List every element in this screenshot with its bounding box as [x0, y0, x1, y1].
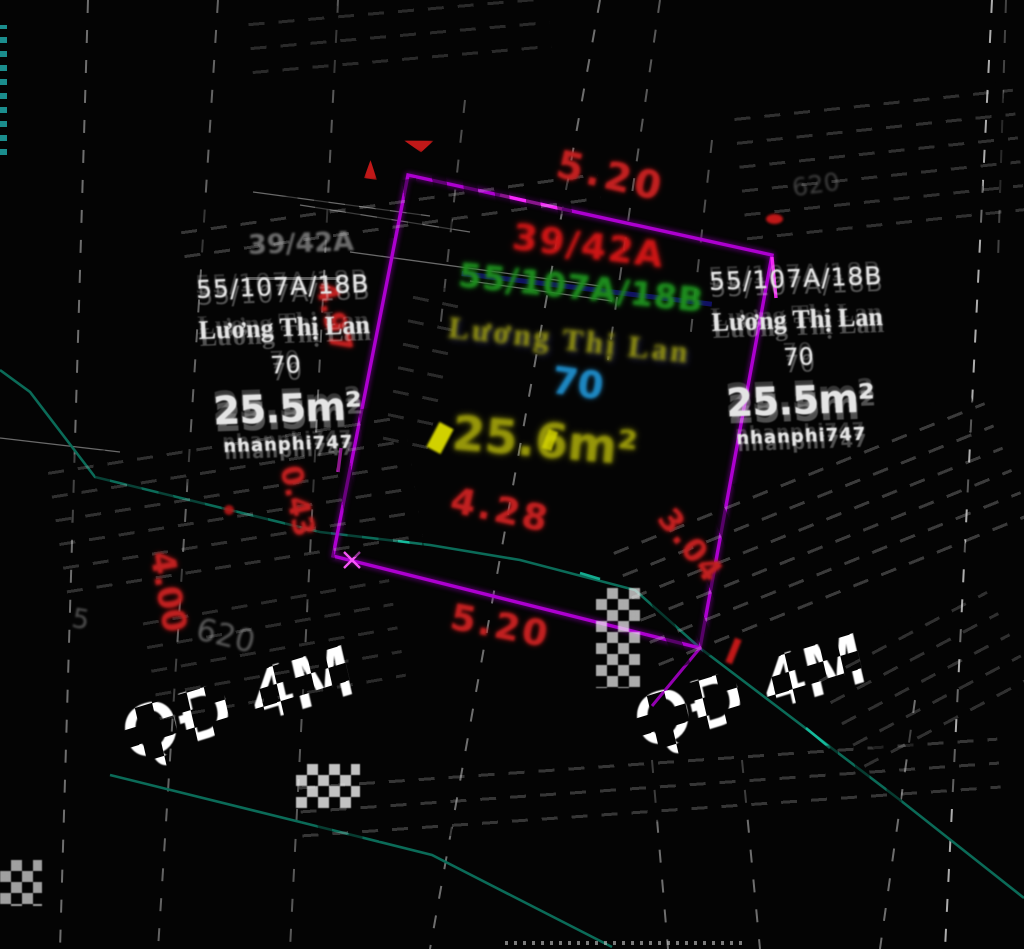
cad-viewport[interactable]: 5.20 39/42A 55/107A/18B Lương Thị Lan 70…: [0, 0, 1024, 949]
neighbor-area-label: 25.5m²: [199, 384, 375, 435]
land-code-label: 70: [549, 359, 606, 409]
glitch-checker-blob: [0, 860, 42, 906]
glitch-field: [733, 81, 1024, 250]
neighbor-address-label: 55/107A/18B: [195, 269, 371, 304]
cyan-edge-glitch: [0, 25, 7, 155]
ghost-plot-number-label: 39/42A: [247, 226, 354, 261]
neighbor-owner-label: Lương Thị Lan: [196, 310, 372, 346]
neighbor-right-block: 55/107A/18B Lương Thị Lan 70 25.5m² nhan…: [703, 261, 894, 450]
neighbor-land-code-label: 70: [198, 348, 374, 382]
glitch-checker-blob: [296, 764, 360, 808]
neighbor-left-block: 55/107A/18B Lương Thị Lan 70 25.5m² nhan…: [195, 269, 376, 458]
neighbor-area-label: 25.5m²: [707, 376, 893, 427]
dotted-tick-row: [505, 941, 747, 945]
glitch-checker-strip: [596, 588, 640, 688]
red-dot-mark: [224, 505, 234, 515]
neighbor-owner-label: Lương Thị Lan: [704, 302, 890, 338]
neighbor-land-code-label: 70: [706, 340, 892, 374]
red-dot-mark: [766, 214, 783, 224]
neighbor-address-label: 55/107A/18B: [703, 261, 889, 296]
